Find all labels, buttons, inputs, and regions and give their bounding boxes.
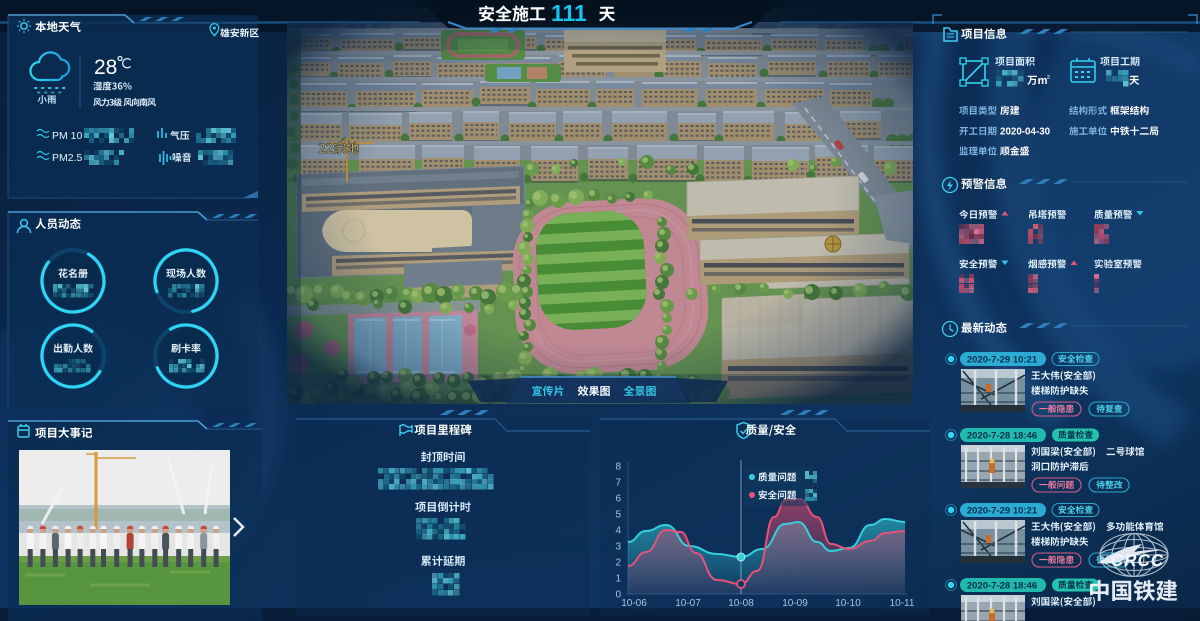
svg-text:5: 5 [615,510,621,521]
svg-text:PM2.5: PM2.5 [52,152,83,164]
svg-text:2020-7-28 18:46: 2020-7-28 18:46 [967,581,1037,592]
svg-text:10-11: 10-11 [890,598,915,609]
svg-text:1: 1 [615,574,621,585]
svg-text:10-06: 10-06 [621,598,647,609]
svg-text:4: 4 [615,526,621,537]
svg-text:10-09: 10-09 [782,598,808,609]
svg-text:PM 10: PM 10 [52,130,83,142]
svg-text:28: 28 [94,56,117,79]
svg-text:10-08: 10-08 [728,598,754,609]
svg-text:²: ² [1047,73,1050,83]
svg-text:2020-04-30: 2020-04-30 [1000,127,1051,138]
svg-text:2020-7-28 18:46: 2020-7-28 18:46 [967,431,1037,442]
svg-text:2020-7-29 10:21: 2020-7-29 10:21 [967,506,1038,517]
svg-text:2020-7-29 10:21: 2020-7-29 10:21 [967,355,1038,366]
svg-text:6: 6 [615,494,621,505]
svg-text:10-07: 10-07 [675,598,701,609]
svg-text:3: 3 [615,542,621,553]
svg-text:10-10: 10-10 [835,598,861,609]
svg-text:8: 8 [615,462,621,473]
svg-text:CRCC: CRCC [1109,550,1166,570]
svg-text:2: 2 [615,558,621,569]
svg-text:7: 7 [615,478,621,489]
svg-text:111: 111 [551,0,587,26]
